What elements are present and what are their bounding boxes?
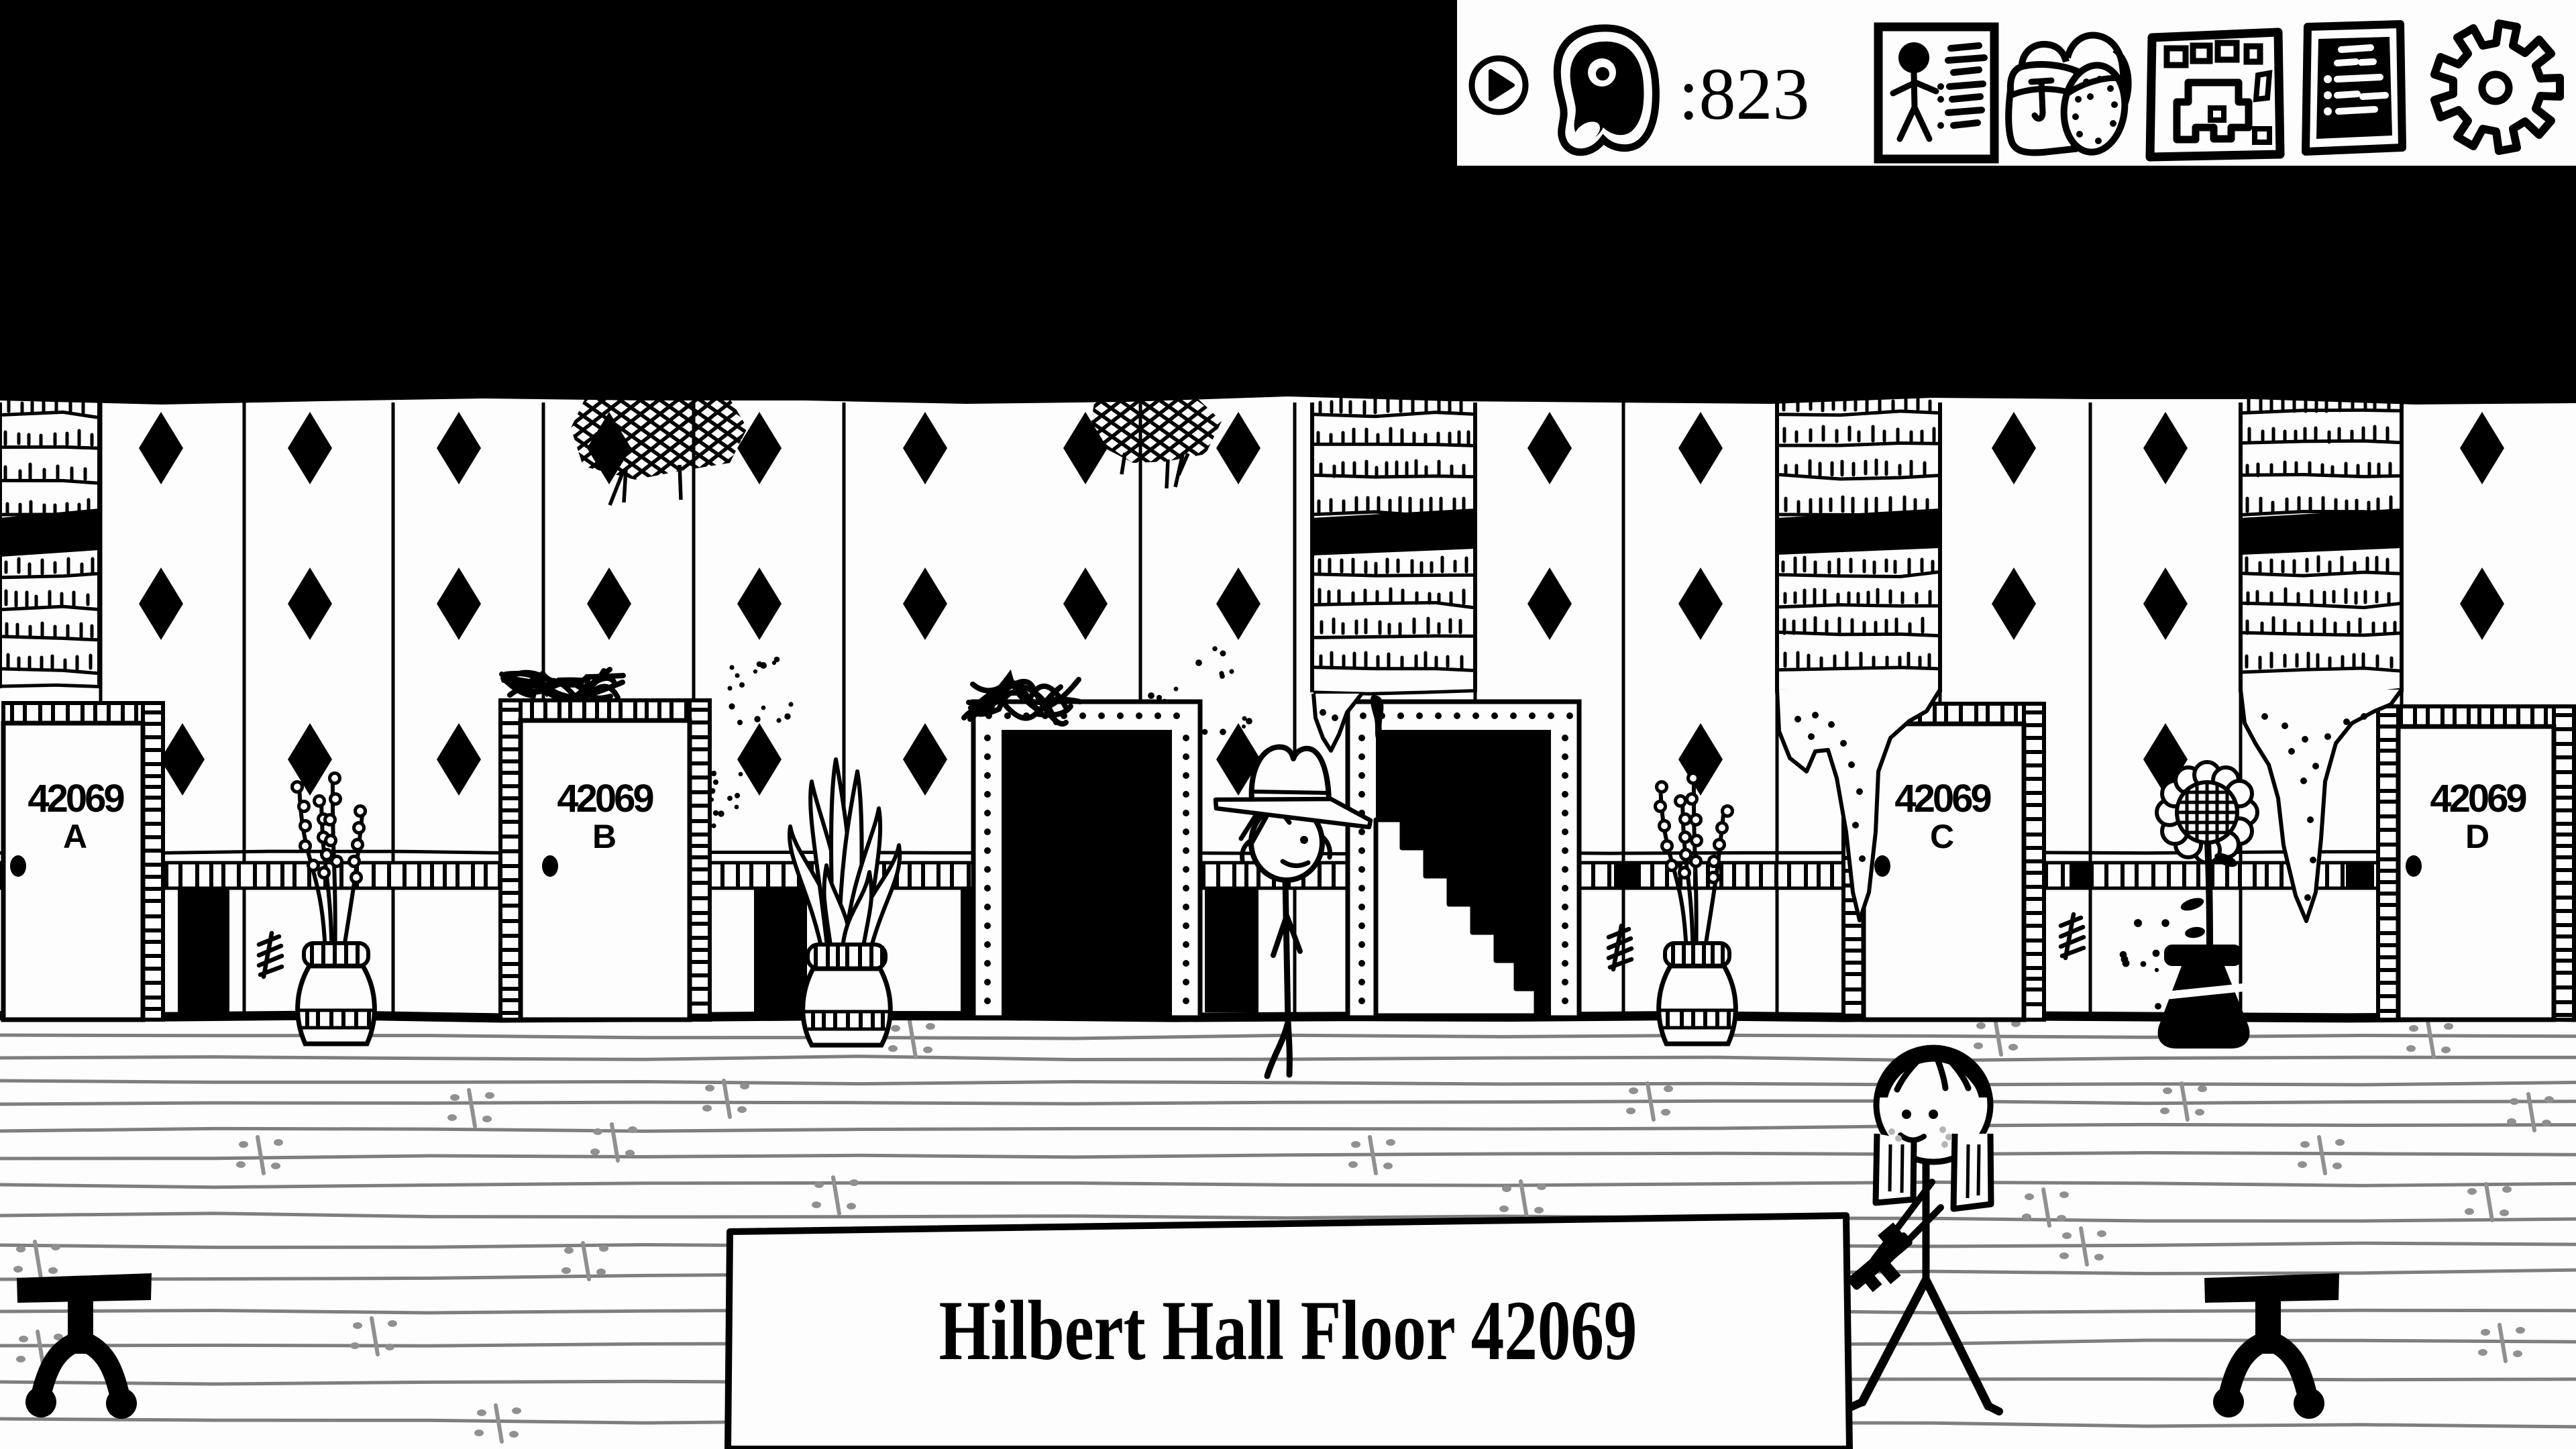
svg-text:42069: 42069	[28, 777, 124, 820]
svg-text:42069: 42069	[557, 777, 653, 820]
svg-text:42069: 42069	[1894, 777, 1991, 820]
svg-text::823: :823	[1678, 53, 1810, 135]
svg-text:D: D	[2465, 818, 2489, 855]
svg-text:B: B	[592, 818, 616, 855]
svg-text:C: C	[1930, 818, 1954, 855]
svg-text:Hilbert Hall Floor 42069: Hilbert Hall Floor 42069	[939, 1283, 1638, 1378]
svg-text:A: A	[63, 818, 87, 855]
svg-text:42069: 42069	[2430, 777, 2526, 820]
